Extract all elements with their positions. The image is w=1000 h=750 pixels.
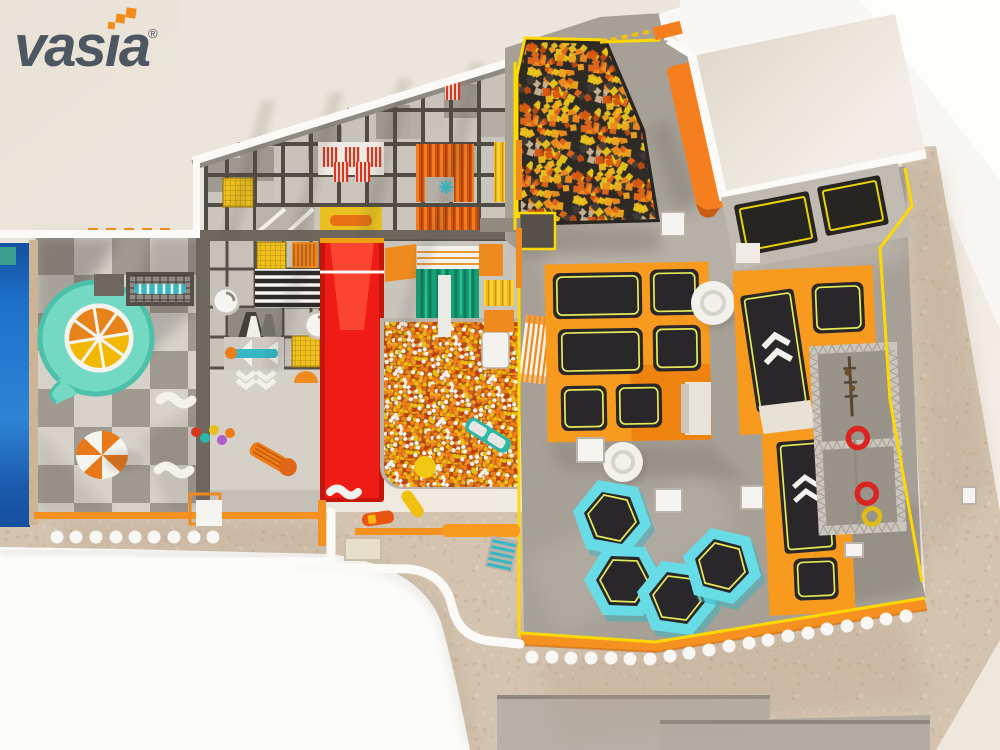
svg-text:vasıa: vasıa: [14, 14, 150, 79]
svg-text:®: ®: [148, 26, 158, 41]
